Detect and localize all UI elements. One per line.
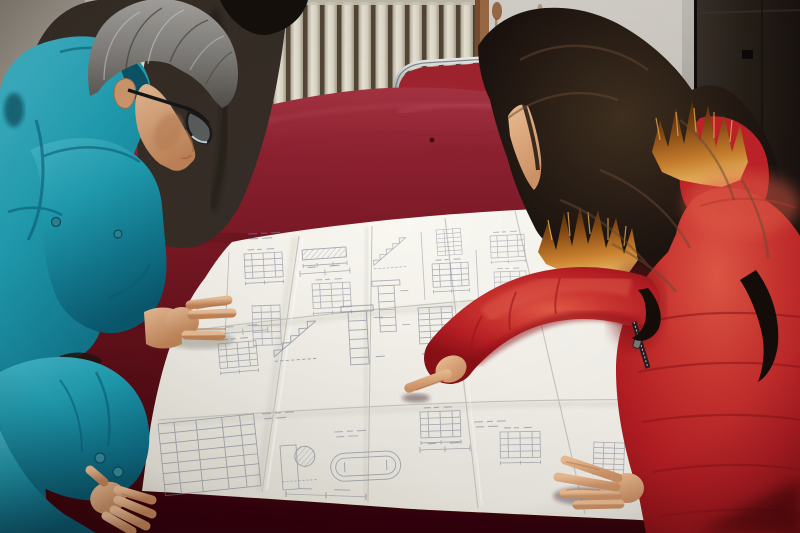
vignette-overlay [0,0,800,533]
photo-scene [0,0,800,533]
